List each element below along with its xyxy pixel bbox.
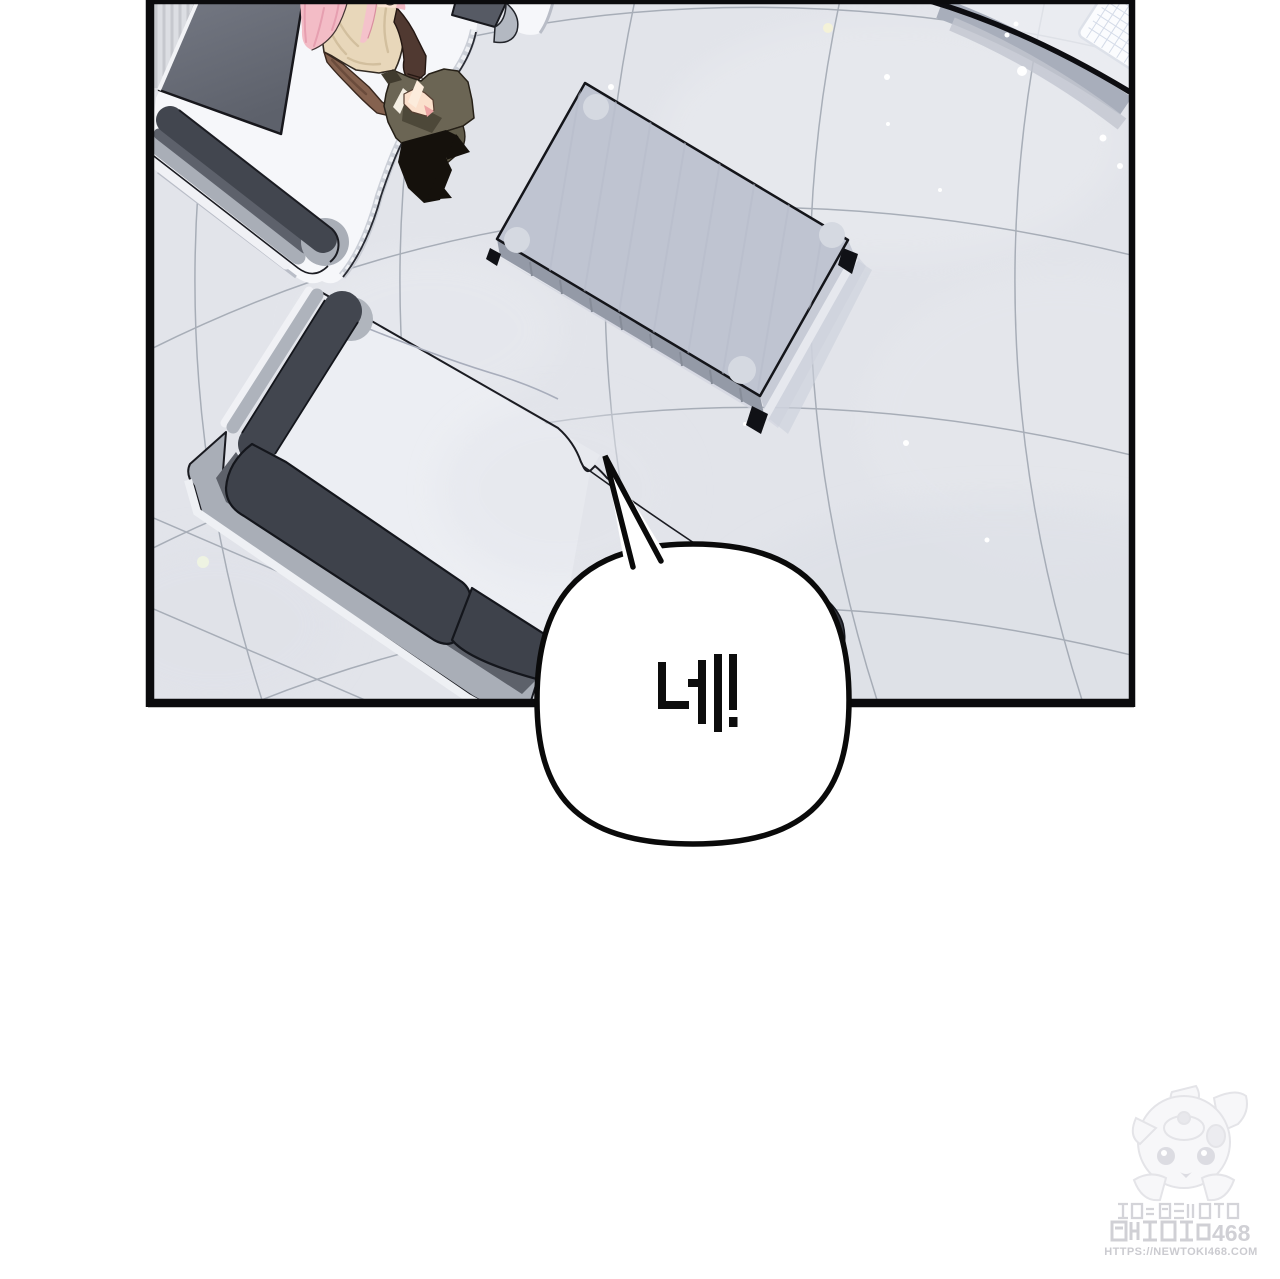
svg-text:HTTPS://NEWTOKI468.COM: HTTPS://NEWTOKI468.COM — [1104, 1246, 1257, 1258]
svg-text:468: 468 — [1212, 1220, 1251, 1246]
